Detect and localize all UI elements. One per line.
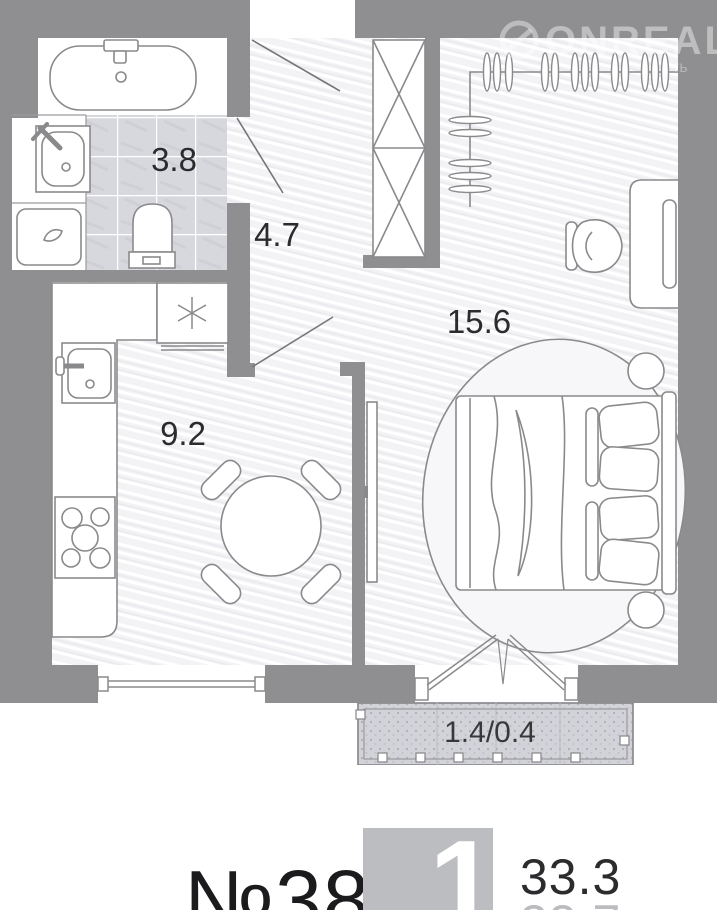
- balcony: 1.4/0.4: [356, 703, 633, 765]
- bathtub-faucet-icon: [104, 40, 138, 51]
- room-count-badge: 1: [363, 828, 493, 910]
- door-hinge-right: [565, 678, 578, 700]
- wall-kitchen-living: [352, 376, 365, 665]
- washing-machine: [17, 209, 81, 265]
- bed: [456, 392, 676, 594]
- wall-wardrobe-side: [425, 38, 440, 268]
- desk: [630, 180, 678, 308]
- floor-plan-page: 1.4/0.4: [0, 0, 717, 910]
- wall-bathroom-bottom: [12, 270, 237, 282]
- tv-bracket: [364, 486, 368, 498]
- toilet-tank: [129, 252, 175, 268]
- hall-wardrobe: [373, 40, 425, 257]
- wall-bathroom-foot: [227, 363, 255, 377]
- room-label-bathroom: 3.8: [151, 141, 197, 178]
- wall-kitchen-living-head: [340, 362, 365, 376]
- wall-left-upper: [0, 0, 38, 118]
- room-label-balcony: 1.4/0.4: [444, 716, 536, 749]
- room-label-hallway: 4.7: [254, 216, 300, 253]
- wall-left-lower: [0, 270, 52, 703]
- entrance-recess: [250, 0, 355, 38]
- wall-bottom-left: [0, 665, 98, 703]
- watermark-brand: ONREALT: [545, 19, 717, 63]
- door-hinge-left: [415, 678, 428, 700]
- pouf-bottom: [628, 592, 664, 628]
- room-label-living-room: 15.6: [447, 303, 511, 340]
- bed-headboard: [662, 392, 676, 594]
- wall-bathroom-right-upper: [227, 38, 250, 117]
- area-secondary: 33.7: [520, 896, 621, 910]
- pillow-bolster-bottom: [586, 502, 598, 580]
- balcony-door-recess: [415, 665, 578, 703]
- watermark-fragment: ть: [672, 59, 688, 76]
- unit-number: №38: [184, 858, 371, 910]
- room-count: 1: [429, 822, 497, 910]
- toilet-bowl: [133, 204, 172, 252]
- room-label-kitchen: 9.2: [160, 415, 206, 452]
- floor-plan: 1.4/0.4: [0, 0, 717, 765]
- desk-chair: [573, 220, 623, 272]
- tv: [367, 402, 377, 582]
- bathtub-faucet-stem: [114, 51, 126, 63]
- wall-bottom-mid: [265, 665, 415, 703]
- pillow-bolster-top: [586, 408, 598, 486]
- pouf-top: [628, 353, 664, 389]
- dining-table: [221, 476, 321, 576]
- wall-right: [678, 0, 717, 703]
- kitchen-window-recess: [98, 665, 265, 703]
- wall-bathroom-right-lower: [227, 203, 250, 363]
- wall-left-mid: [0, 115, 12, 275]
- kitchen-faucet-handle: [56, 357, 64, 375]
- washbasin: [42, 132, 84, 186]
